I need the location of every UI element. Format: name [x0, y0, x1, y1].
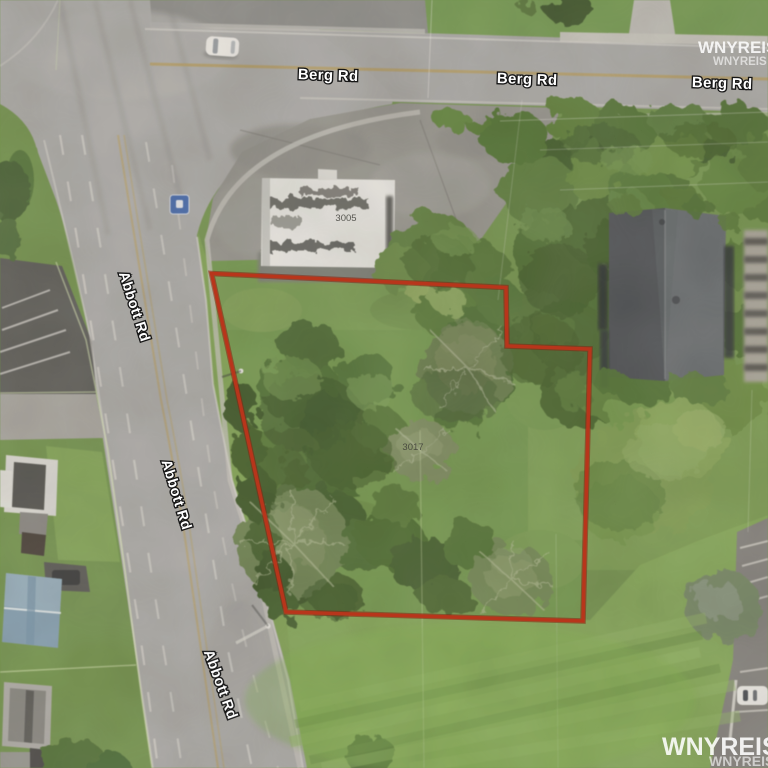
svg-text:WNYREIS: WNYREIS	[709, 753, 768, 768]
svg-text:Berg Rd: Berg Rd	[692, 74, 753, 93]
svg-text:Berg Rd: Berg Rd	[298, 66, 359, 85]
svg-text:3005: 3005	[335, 213, 356, 224]
svg-text:WNYREIS: WNYREIS	[713, 56, 767, 68]
svg-text:Berg Rd: Berg Rd	[497, 70, 558, 89]
svg-text:3017: 3017	[402, 442, 423, 453]
svg-text:WNYREIS: WNYREIS	[698, 38, 768, 57]
